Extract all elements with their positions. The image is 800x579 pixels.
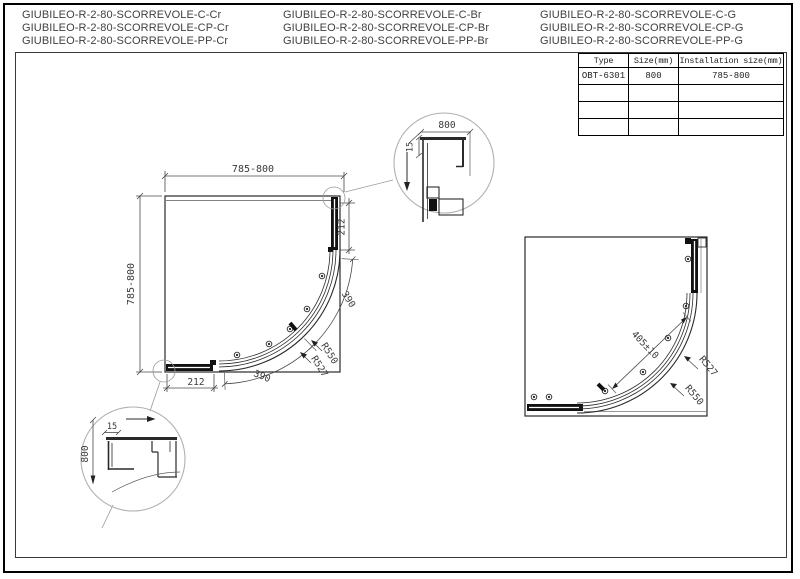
- dim-text-detail-height: 800: [80, 445, 91, 462]
- detail-circle: [81, 407, 185, 511]
- enclosure-outline: [525, 237, 707, 416]
- roller-icon: [546, 394, 552, 400]
- detail-view-top-profile: 800 15: [394, 113, 494, 222]
- dim-text-width: 785-800: [232, 164, 274, 175]
- drawing-sheet: GIUBILEO-R-2-80-SCORREVOLE-C-Cr GIUBILEO…: [0, 0, 800, 579]
- radius-labels: R527 R550: [670, 354, 719, 408]
- slide-direction-arrow-down: [404, 152, 410, 191]
- curved-door-glass: [577, 293, 697, 413]
- dimension-door-opening: 405±10: [608, 313, 691, 394]
- technical-drawing: 785-800 785-800 212 212: [0, 0, 800, 579]
- dim-text-detail-thickness: 15: [406, 142, 416, 152]
- detail-leader-bottom: [150, 382, 160, 411]
- curved-door-glass: [219, 250, 340, 371]
- dim-text-arc-upper: 390: [339, 289, 358, 310]
- dim-text-radius-inner: R527: [696, 354, 719, 379]
- wall-profile-right: [685, 238, 706, 293]
- dimension-bottom-segment: 212: [163, 374, 218, 392]
- roller-icon: [685, 256, 691, 262]
- roller-icon: [234, 352, 240, 358]
- dim-text-door-opening: 405±10: [629, 329, 661, 362]
- dim-text-detail-width: 800: [438, 120, 455, 131]
- slide-direction-arrow-right: [126, 416, 156, 422]
- roller-icon: [640, 369, 646, 375]
- dimension-width: 785-800: [162, 164, 347, 192]
- left-plan-view: 785-800 785-800 212 212: [102, 164, 393, 528]
- radius-labels: R550 R527: [300, 340, 340, 379]
- dim-text-bottom-segment: 212: [187, 377, 204, 388]
- roller-icon: [266, 341, 272, 347]
- dim-text-detail-thickness: 15: [107, 422, 117, 432]
- roller-icon: [665, 335, 671, 341]
- dim-text-radius-outer: R550: [682, 383, 705, 408]
- roller-icon: [319, 273, 325, 279]
- detail-dimension-height: 800: [80, 417, 96, 485]
- profile-section: [106, 439, 180, 493]
- door-rollers: [531, 256, 691, 400]
- dim-text-side-segment: 212: [337, 218, 348, 235]
- detail-dimension-thickness: 15: [102, 422, 121, 435]
- roller-icon: [531, 394, 537, 400]
- dimension-side-segment: 212: [337, 198, 356, 254]
- roller-icon: [304, 306, 310, 312]
- door-handle: [598, 384, 604, 390]
- enclosure-outline: [165, 196, 340, 372]
- dim-text-arc-lower: 390: [252, 368, 272, 385]
- detail-leader-top: [345, 180, 393, 192]
- dim-text-height: 785-800: [126, 263, 137, 305]
- dimension-height: 785-800: [126, 193, 162, 375]
- wall-profile-bottom: [527, 404, 583, 411]
- right-plan-view: 405±10 R527 R550: [525, 237, 719, 416]
- detail-view-bottom-profile: 15 800: [80, 407, 185, 511]
